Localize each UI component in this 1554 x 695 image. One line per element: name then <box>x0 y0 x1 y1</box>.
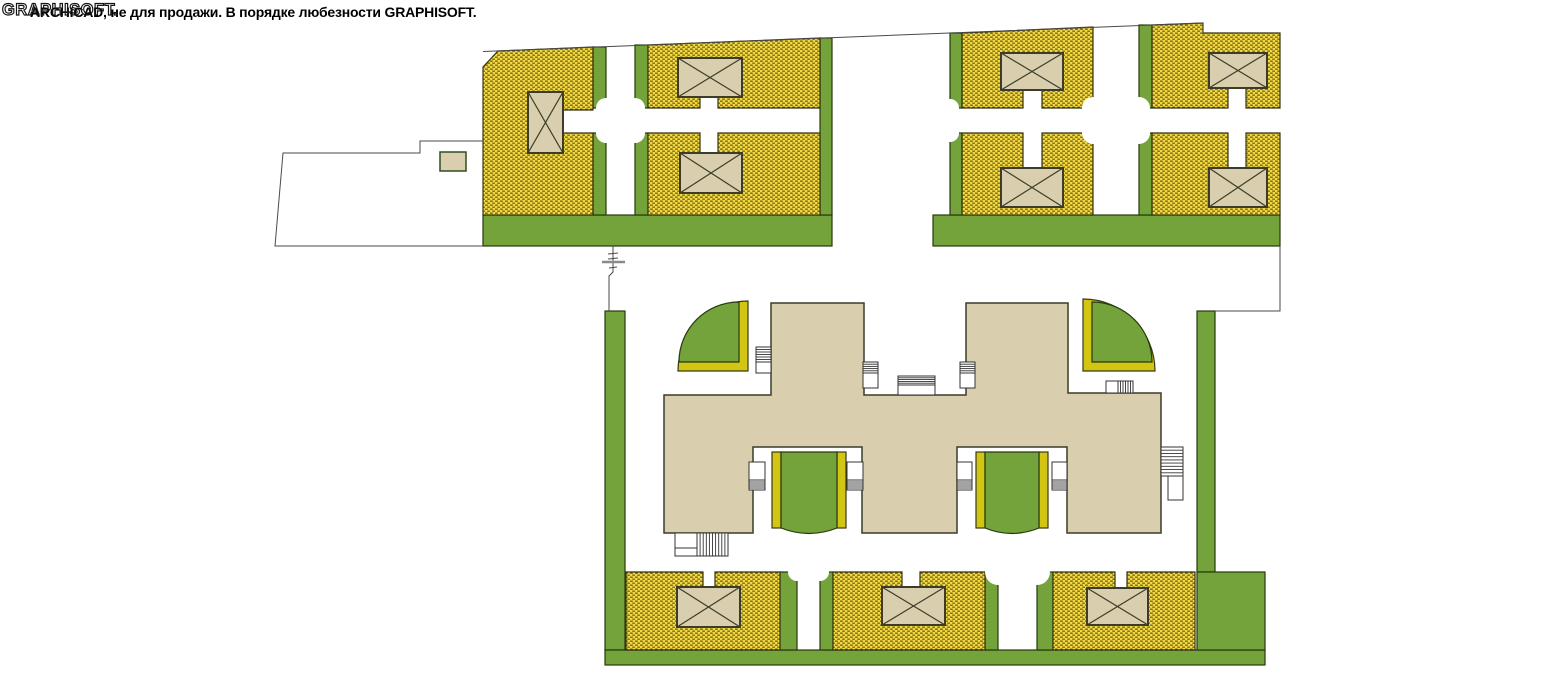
porch <box>898 385 935 395</box>
graphisoft-logo-watermark: GRAPHISOFT. <box>2 1 118 20</box>
stairs <box>960 362 975 373</box>
grass-strip <box>1139 133 1152 215</box>
quarter-lawn <box>679 302 739 362</box>
fence-tick <box>608 258 618 259</box>
courtyard-lawn <box>781 452 837 534</box>
sidewalk-top-left <box>483 215 832 246</box>
property-line-right <box>1215 246 1280 311</box>
fence-tick <box>609 267 617 268</box>
courtyard-border <box>1039 452 1048 528</box>
grass-strip <box>779 572 797 650</box>
grass-strip <box>950 33 962 108</box>
quarter-lawn <box>1092 302 1152 362</box>
grass-strip <box>635 133 648 215</box>
curb-fillet <box>811 563 829 581</box>
curb-fillet <box>596 98 616 118</box>
courtyard-lawn <box>985 452 1039 534</box>
fence-tick <box>608 253 618 254</box>
shed <box>440 152 466 171</box>
curb-fillet <box>1128 122 1150 144</box>
stairs <box>1161 447 1183 476</box>
grass-strip <box>950 133 962 215</box>
stairs <box>957 480 972 490</box>
curb-fillet <box>1082 97 1104 119</box>
property-line-top <box>483 23 1203 52</box>
grass-strip <box>820 572 833 650</box>
grass-strip <box>1139 25 1152 108</box>
site-plan-drawing <box>0 0 1554 695</box>
grass-strip-left <box>605 311 625 650</box>
stairs <box>749 480 765 490</box>
porch <box>1168 476 1183 500</box>
porch <box>749 462 765 480</box>
plan-shapes <box>275 23 1280 665</box>
courtyard-border <box>837 452 846 528</box>
curb-fillet <box>941 99 959 117</box>
grass-band-bottom <box>605 650 1265 665</box>
grass-strip <box>820 38 832 215</box>
courtyard-border <box>772 452 781 528</box>
curb-fillet <box>788 563 806 581</box>
curb-fillet <box>1024 559 1050 585</box>
grass-block-right <box>1197 572 1265 650</box>
stairs <box>847 480 863 490</box>
porch <box>756 362 771 373</box>
sidewalk-top-right <box>933 215 1280 246</box>
grass-strip <box>593 133 606 215</box>
curb-fillet <box>625 123 645 143</box>
grass-strip-right <box>1197 311 1215 572</box>
porch <box>1106 381 1118 393</box>
fence-line <box>609 246 613 311</box>
stairs <box>863 362 878 373</box>
site-plan-canvas: ARCHICAD, не для продажи. В порядке любе… <box>0 0 1554 695</box>
porch <box>1052 462 1067 480</box>
curb-fillet <box>1082 122 1104 144</box>
porch <box>863 373 878 388</box>
curb-fillet <box>625 98 645 118</box>
porch <box>960 373 975 388</box>
porch <box>847 462 863 480</box>
courtyard-border <box>976 452 985 528</box>
stairs <box>1052 480 1067 490</box>
curb-fillet <box>985 559 1011 585</box>
curb-fillet <box>596 123 616 143</box>
curb-fillet <box>1128 97 1150 119</box>
curb-fillet <box>941 124 959 142</box>
porch <box>957 462 972 480</box>
